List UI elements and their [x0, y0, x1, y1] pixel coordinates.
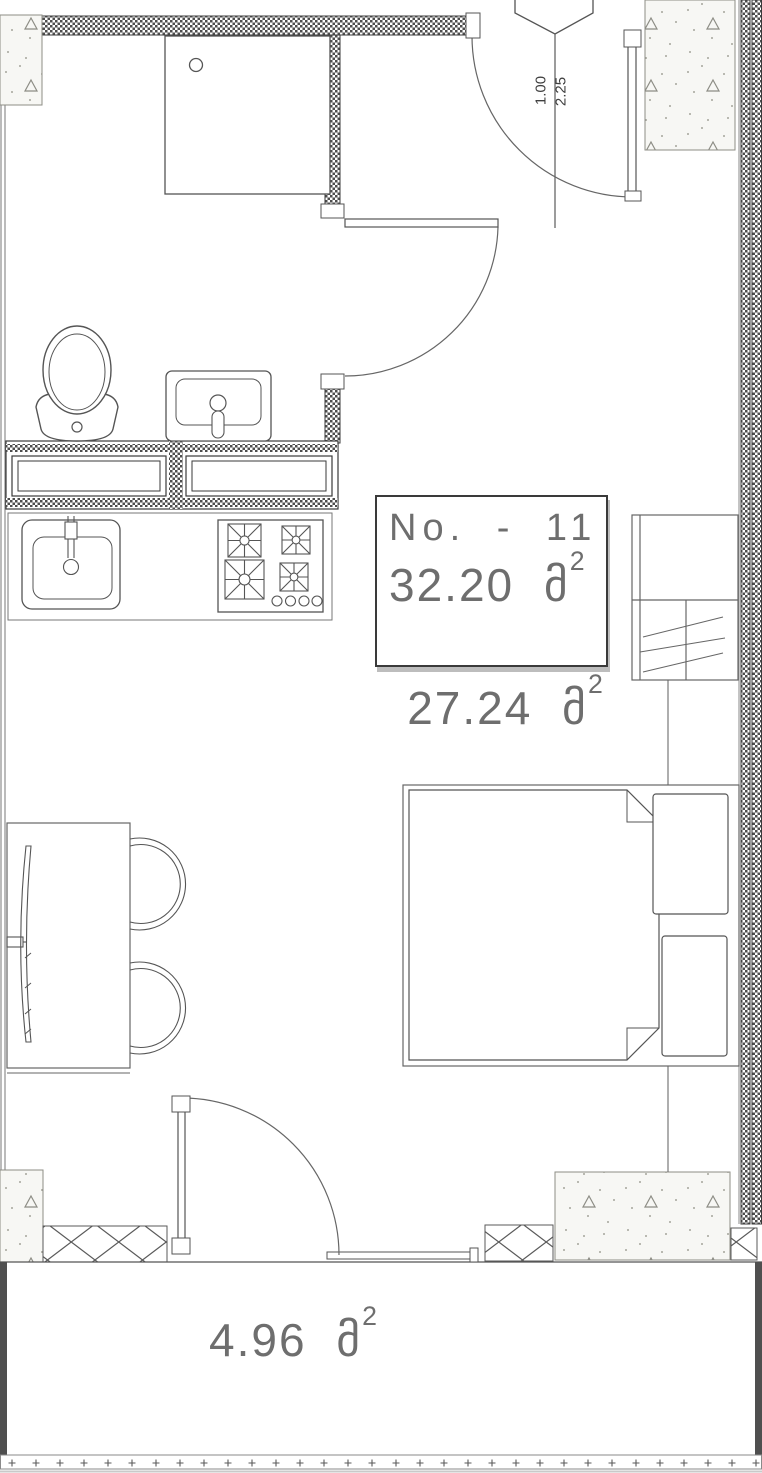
stove — [218, 520, 323, 612]
balcony-area-unit: მ2 — [321, 1314, 377, 1366]
bathroom-door — [345, 219, 498, 376]
bed-pillow — [653, 794, 728, 914]
entrance-height-dimension: 2.25 — [554, 70, 569, 114]
balcony-area-value: 4.96 — [209, 1314, 307, 1366]
unit-number: No. - 11 — [389, 507, 596, 550]
unit-area-value: 32.20 — [389, 559, 514, 611]
room-area-value: 27.24 — [407, 682, 532, 734]
shower — [165, 36, 330, 194]
room-area-unit: მ2 — [547, 682, 603, 734]
bed — [403, 785, 739, 1066]
kitchen-sink — [22, 516, 120, 609]
chair — [130, 962, 186, 1054]
wardrobe — [632, 515, 738, 680]
floorplan-drawing — [0, 0, 762, 1473]
chair — [130, 838, 186, 930]
floor-plan: No. - 11 32.20 მ2 27.24 მ2 4.96 მ2 1.00 … — [0, 0, 762, 1473]
unit-area: 32.20 მ2 — [389, 558, 596, 612]
toilet — [36, 326, 118, 441]
room-area-label: 27.24 მ2 — [392, 681, 618, 735]
balcony-left-wall — [0, 1262, 7, 1456]
bathroom-south-wall — [6, 441, 338, 509]
section-marker — [515, 0, 593, 228]
entrance-door — [472, 36, 636, 197]
bathroom-sink — [166, 371, 271, 441]
balcony-right-wall — [755, 1262, 762, 1456]
bed-pillow — [662, 936, 727, 1056]
unit-area-unit: მ2 — [529, 559, 585, 611]
faucet-icon — [210, 395, 226, 411]
unit-label-box: No. - 11 32.20 მ2 — [375, 495, 608, 667]
insulation-strip — [1, 1455, 762, 1469]
balcony-area-label: 4.96 მ2 — [183, 1313, 403, 1367]
entrance-width-dimension: 1.00 — [534, 69, 549, 113]
chairs — [130, 838, 186, 1054]
balcony-door — [178, 1098, 339, 1255]
bed-blanket — [409, 790, 659, 1060]
